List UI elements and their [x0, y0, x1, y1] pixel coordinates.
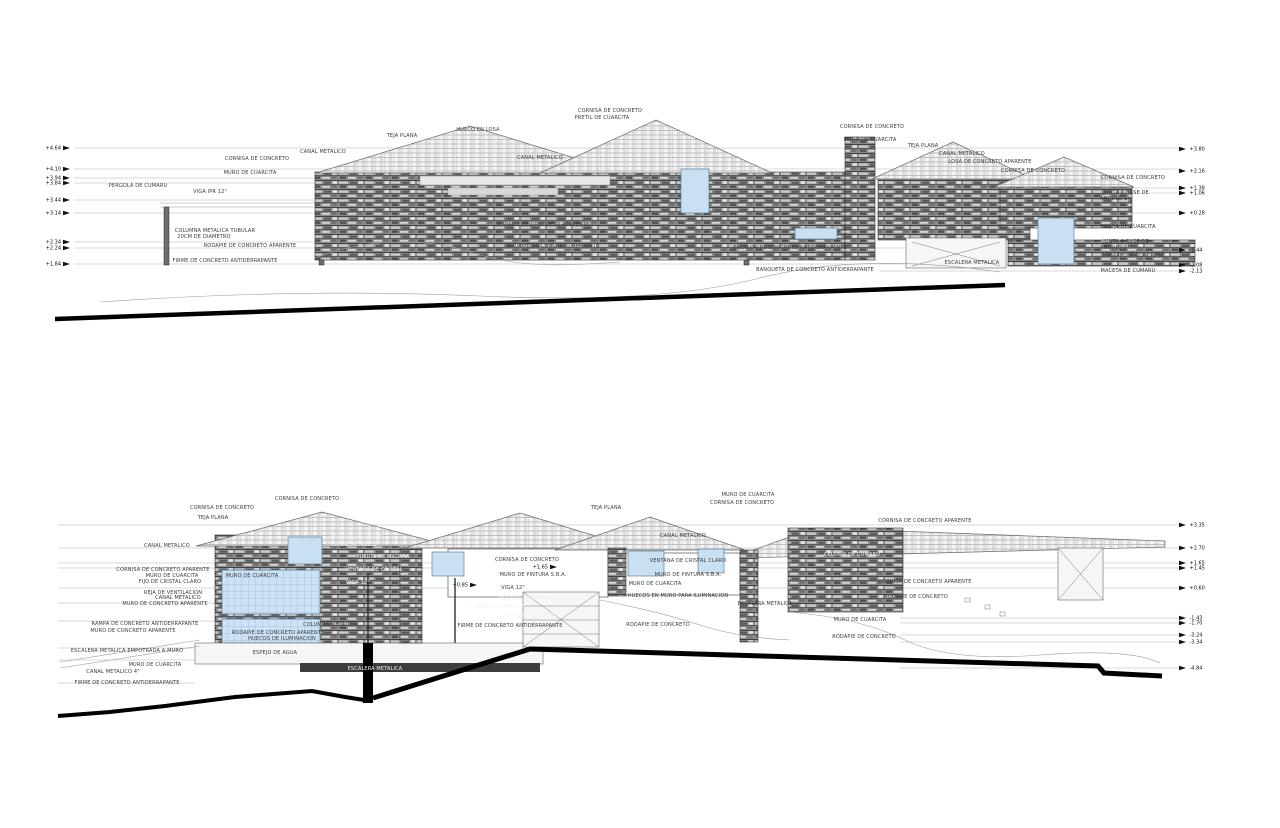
foundation-cut: [363, 643, 373, 703]
annotation-label: VENTANA DE CRISTAL CLARO: [650, 558, 727, 564]
annotation-label: MURO DE CUARCITA: [224, 170, 277, 176]
annotation-label: COLUMNA METALICA: [471, 604, 525, 610]
annotation-label: MURO DE CUARCITA: [834, 617, 887, 623]
annotation-label: FIRME DE CONCRETO ANTIDERRAPANTE: [74, 680, 179, 686]
annotation-label: 20CM DE DIAMETRO: [177, 234, 230, 240]
annotation-label: HUECOS DE ILUMINACION: [248, 636, 316, 642]
annotation-label: CORNISA DE CONCRETO: [190, 505, 254, 511]
level-value: +2.24: [46, 246, 61, 252]
level-flag-icon: [1179, 561, 1186, 565]
level-value: +3.80: [1190, 147, 1205, 153]
annotation-label: TEJA PLANA: [386, 133, 418, 139]
stone-pier: [608, 548, 626, 596]
level-flag-icon: [63, 246, 70, 250]
annotation-label: ESCALON DE CONCRETO ANTIDERRAPANTE: [733, 245, 847, 251]
annotation-label: LOSA DE CONCRETO APARENTE: [948, 159, 1031, 165]
level-value: +4.10: [46, 167, 61, 173]
chimney: [845, 137, 875, 260]
annotation-label: VENTANA DE CRISTAL: [346, 567, 403, 573]
upper-level-markers-left: +4.64+4.10+3.94+3.84+3.44+3.14+2.34+2.24…: [46, 146, 70, 268]
annotation-label: ESCALERA METALICA EMPOTRADA A MURO: [71, 648, 183, 654]
level-value: +2.70: [1190, 546, 1205, 552]
annotation-label: RODAPIE DE CONCRETO APARENTE: [204, 243, 297, 249]
annotation-label: FIRME DE CONCRETO ANTIDERRAPANTE: [457, 623, 562, 629]
drawing-sheet: CORNISA DE CONCRETOCANAL METALICOTEJA PL…: [0, 0, 1280, 828]
annotation-label: MURO DE CUARCITA: [722, 492, 775, 498]
annotation-label: CORNISA DE CONCRETO: [225, 156, 289, 162]
annotation-label: TEJA PLANA: [907, 143, 939, 149]
level-flag-icon: [1179, 523, 1186, 527]
annotation-label: MURO DE PINTURA S.B.A.: [500, 572, 567, 578]
level-flag-icon: [1179, 666, 1186, 670]
level-flag-icon: [63, 240, 70, 244]
level-flag-icon: [1179, 616, 1186, 620]
lower-level-markers-right: +3.35+2.70+1.65+1.45+0.60-1.43-1.70-3.24…: [1179, 523, 1205, 672]
level-flag-icon: [63, 262, 70, 266]
level-flag-icon: [1179, 633, 1186, 637]
annotation-label: TEJA PLANA: [590, 505, 622, 511]
level-value: +1.84: [46, 262, 61, 268]
annotation-label: MURO DE CUARCITA: [629, 581, 682, 587]
pergola-column: [164, 207, 169, 265]
annotation-label: PUERTA DE MADERA: [356, 554, 409, 560]
window: [681, 169, 709, 213]
annotation-label: RODAPIE DE CONCRETO: [832, 634, 896, 640]
annotation-label: MURO DE CUARCITA: [129, 662, 182, 668]
annotation-label: CANAL METALICO: [144, 543, 190, 549]
annotation-label: CANAL METALICO 4": [86, 669, 139, 675]
annotation-label: BANDA DE CUARCITA: [1100, 224, 1156, 230]
annotation-label: CANAL METALICO: [517, 155, 563, 161]
tile-roof: [540, 120, 772, 173]
level-value: +1.65: [533, 565, 548, 571]
level-flag-icon: [63, 181, 70, 185]
annotation-label: CORNISA DE CONCRETO: [578, 108, 642, 114]
level-flag-icon: [1179, 186, 1186, 190]
main-building: [315, 120, 875, 260]
level-flag-icon: [1179, 147, 1186, 151]
annotation-label: VIGA IPR 12": [193, 189, 227, 195]
annotation-label: PRETIL DE CUARCITA: [575, 115, 630, 121]
annotation-label: PUERTA DE CEDRO: [508, 613, 557, 619]
annotation-label: VIGA 12": [501, 585, 525, 591]
annotation-label: RODAPIE DE CONCRETO: [626, 622, 690, 628]
annotation-label: CORNISA DE CONCRETO APARENTE: [878, 579, 971, 585]
right-buildings: [872, 142, 1195, 268]
annotation-label: HUECOS EN MURO PARA ILUMINACION: [628, 593, 729, 599]
level-flag-icon: [1179, 546, 1186, 550]
annotation-label: MURO DE CUARCITA: [226, 573, 279, 579]
level-value: +0.85: [453, 583, 468, 589]
level-value: +4.64: [46, 146, 61, 152]
annotation-label: HUECO EN LOSA: [456, 127, 500, 133]
architectural-drawing-canvas: CORNISA DE CONCRETOCANAL METALICOTEJA PL…: [0, 0, 1280, 828]
annotation-label: CORNISA DE CONCRETO: [840, 124, 904, 130]
level-value: +1.06: [1190, 191, 1205, 197]
annotation-label: PERGOLA DE CUMARU: [109, 183, 168, 189]
window: [288, 537, 322, 564]
annotation-label: CANAL METALICO: [300, 149, 346, 155]
level-flag-icon: [1179, 269, 1186, 273]
annotation-label: MURO DE CUARCITA: [499, 596, 552, 602]
ground-line: [55, 285, 1005, 319]
annotation-label: RODAPIE DE CONCRETO APARENTE: [507, 243, 600, 249]
annotation-label: CORNISA DE CONCRETO: [495, 557, 559, 563]
level-flag-icon: [63, 211, 70, 215]
level-value: +3.84: [46, 181, 61, 187]
level-value: +3.44: [46, 198, 61, 204]
annotation-label: CORNISA DE CONCRETO: [1001, 168, 1065, 174]
annotation-label: CORNISA DE CONCRETO: [1101, 175, 1165, 181]
annotation-label: CANAL METALICO: [939, 151, 985, 157]
annotation-label: TEJA PLANA: [197, 515, 229, 521]
ground-line: [58, 691, 364, 716]
tile-roof: [196, 512, 450, 546]
annotation-label: CANAL METALICO: [331, 542, 377, 548]
level-flag-icon: [1179, 586, 1186, 590]
annotation-label: VIGA 12": [346, 580, 370, 586]
annotation-label: CORNISA DE CONCRETO: [275, 496, 339, 502]
annotation-label: ESCALERA METALICA: [945, 260, 1000, 266]
annotation-label: RODAPIE DE CONCRETO: [884, 594, 948, 600]
level-value: -1.44: [1190, 248, 1203, 254]
level-flag-icon: [63, 146, 70, 150]
annotation-label: CORNISA DE CONCRETO APARENTE: [878, 518, 971, 524]
annotation-label: MURO DE CUARCITA: [331, 535, 384, 541]
window: [1038, 218, 1074, 264]
annotation-label: ANGULO 1": [1100, 245, 1130, 251]
level-value: +3.35: [1190, 523, 1205, 529]
level-flag-icon: [1179, 640, 1186, 644]
level-value: -1.70: [1190, 621, 1203, 627]
terrace-rail: [420, 176, 610, 185]
annotation-label: CANAL METALICO: [660, 533, 706, 539]
annotation-label: FIJO DE CRISTAL CLARO: [139, 579, 201, 585]
level-value: -3.34: [1190, 640, 1203, 646]
window: [432, 552, 464, 576]
lower-section: CORNISA DE CONCRETOCORNISA DE CONCRETOTE…: [58, 492, 1205, 716]
annotation-label: ESPEJO DE AGUA: [253, 650, 298, 656]
annotation-label: RODAPIE DE CONCRETO: [1101, 253, 1165, 259]
upper-elevation: CORNISA DE CONCRETOCANAL METALICOTEJA PL…: [46, 108, 1205, 319]
level-flag-icon: [1179, 621, 1186, 625]
annotation-label: ESCALERA METALICA: [738, 601, 793, 607]
level-flag-icon: [63, 167, 70, 171]
annotation-label: RAMPA DE CONCRETO ANTIDERRAPANTE: [92, 621, 199, 627]
level-flag-icon: [1179, 169, 1186, 173]
level-flag-icon: [63, 176, 70, 180]
annotation-label: CELOSIA DE CUMARU: [824, 552, 880, 558]
annotation-label: CORNISA DE CONCRETO: [710, 500, 774, 506]
level-flag-icon: [1179, 566, 1186, 570]
annotation-label: RODAPIE DE CONCRETO APARENTE: [497, 222, 590, 228]
annotation-label: ESCALERA METALICA: [348, 666, 403, 672]
annotation-label: MURO DE CUARCITA: [844, 137, 897, 143]
stone-pier: [740, 550, 758, 642]
annotation-label: BANQUETA DE CONCRETO ANTIDERRAPANTE: [756, 267, 874, 273]
level-value: +3.14: [46, 211, 61, 217]
level-value: -3.24: [1190, 633, 1203, 639]
losa-band: [448, 188, 558, 195]
level-value: +1.45: [1190, 566, 1205, 572]
level-flag-icon: [63, 198, 70, 202]
level-value: -2.13: [1190, 269, 1203, 275]
stone-pier: [400, 548, 422, 643]
level-value: -4.84: [1190, 666, 1203, 672]
annotation-label: ANGULO 1": [1100, 196, 1130, 202]
annotation-label: MACETA DE CUMARU: [1101, 268, 1156, 274]
level-value: +0.60: [1190, 586, 1205, 592]
annotation-label: COLUMNA METALICA: [303, 622, 357, 628]
level-flag-icon: [1179, 191, 1186, 195]
annotation-label: MURO DE CONCRETO APARENTE: [90, 628, 175, 634]
level-value: +2.16: [1190, 169, 1205, 175]
dark-band: [300, 663, 540, 672]
level-value: +0.28: [1190, 211, 1205, 217]
annotation-label: MURO DE PINTURA S.B.A.: [655, 572, 722, 578]
annotation-label: FIRME DE CONCRETO ANTIDERRAPANTE: [172, 258, 277, 264]
annotation-label: MURO DE CONCRETO APARENTE: [122, 601, 207, 607]
level-flag-icon: [1179, 211, 1186, 215]
window: [795, 228, 837, 239]
